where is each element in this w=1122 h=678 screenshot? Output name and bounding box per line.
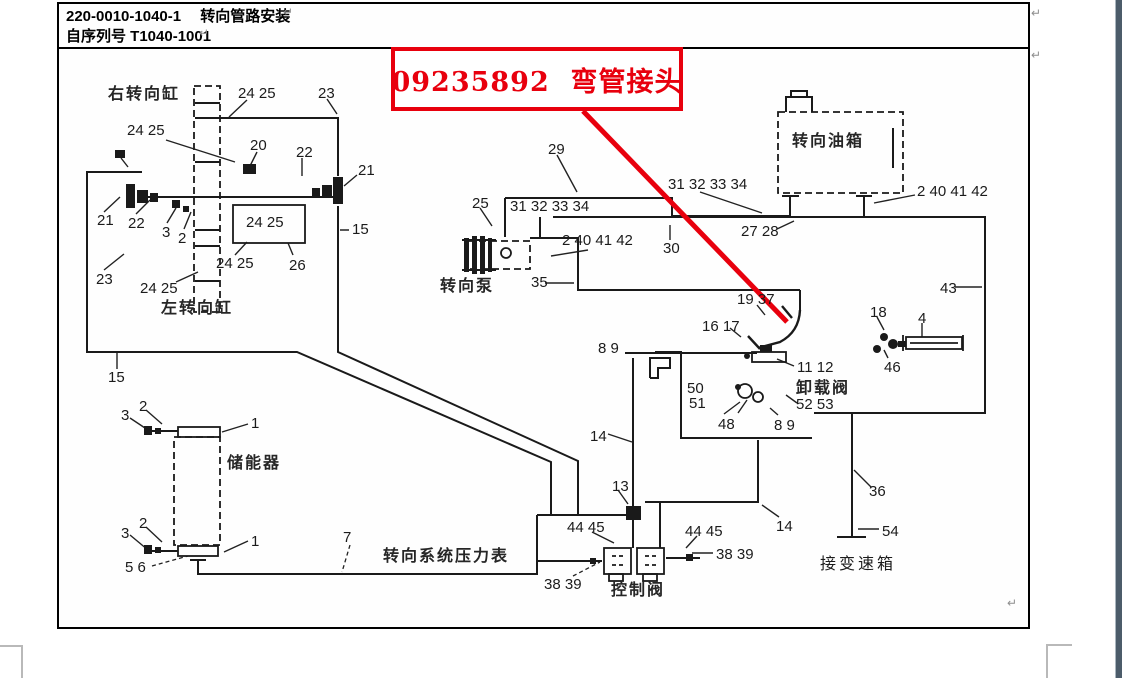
component-parts (178, 205, 963, 581)
dashed-outlines (174, 86, 903, 545)
page-boundary-mark-right (1046, 644, 1072, 678)
part-callout-box: 09235892 弯管接头 (391, 47, 683, 111)
part-callout-text: 09235892 弯管接头 (391, 60, 682, 99)
window-edge-scrollbar[interactable] (1115, 0, 1122, 678)
document-page: 220-0010-1040-1 转向管路安装 自序列号 T1040-1001 (0, 0, 1122, 678)
leader-lines (104, 99, 982, 553)
dashed-leader-lines (152, 545, 600, 576)
elbow-connector-pipe (748, 306, 800, 349)
page-boundary-mark-left (0, 645, 23, 678)
pipe-lines (87, 91, 985, 574)
